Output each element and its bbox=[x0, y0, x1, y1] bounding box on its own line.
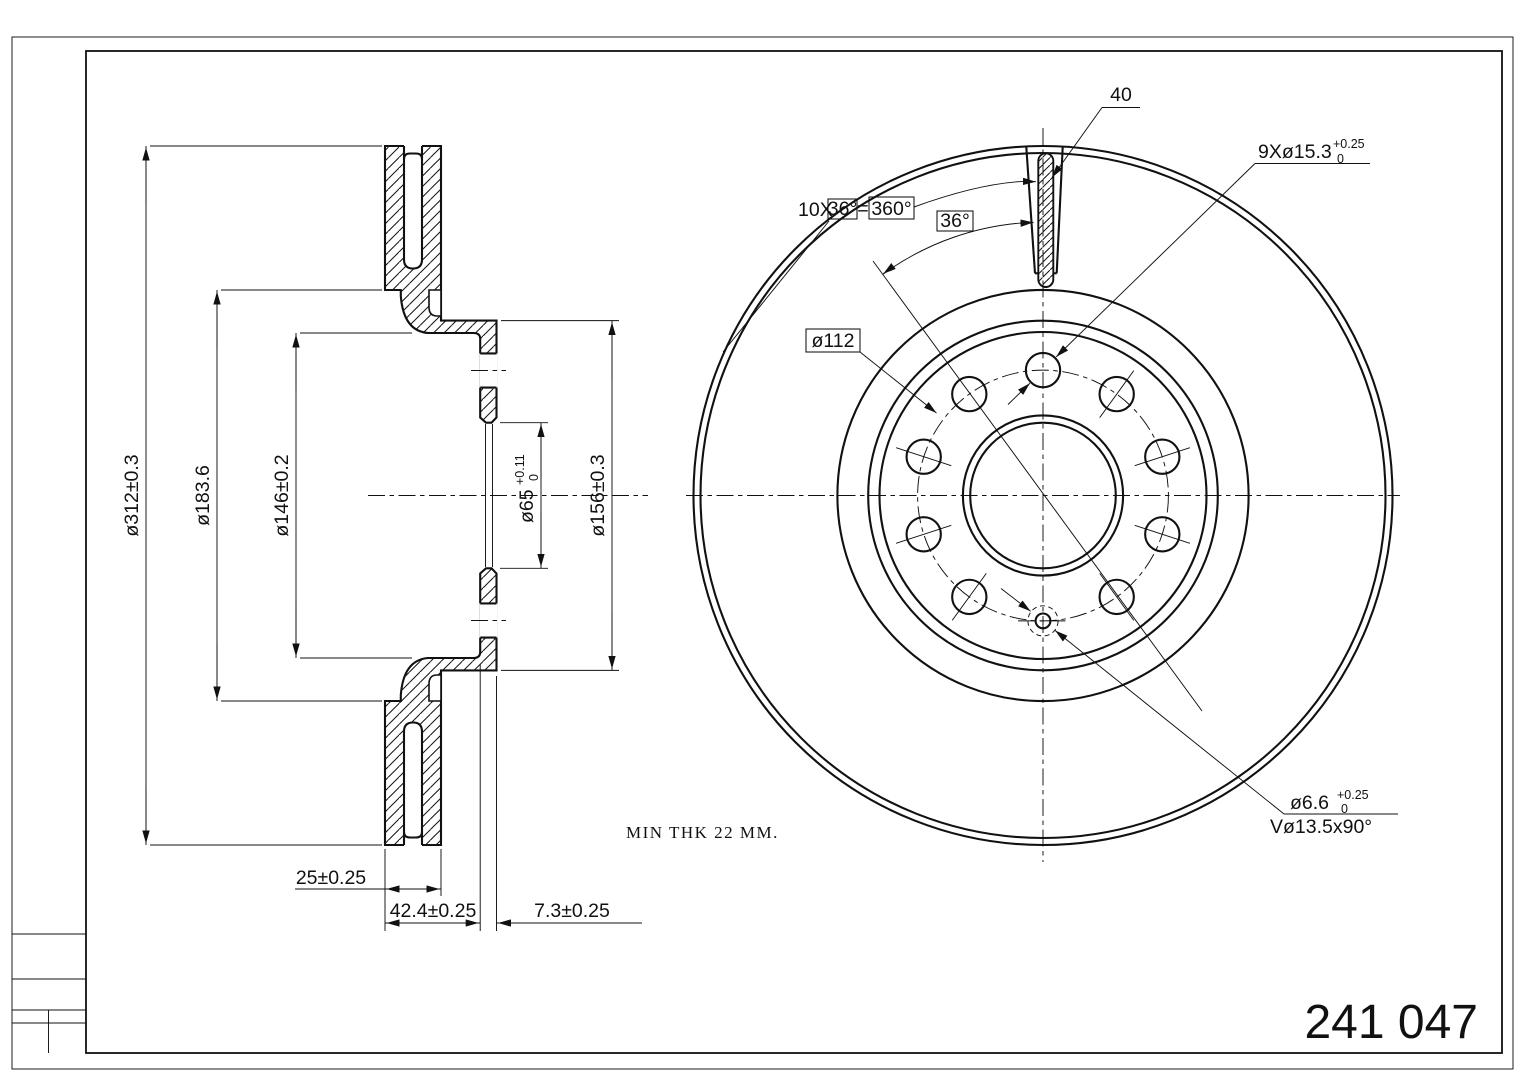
spacing-total-text: 360° bbox=[871, 198, 911, 220]
radial-line-36deg bbox=[873, 261, 1202, 711]
pin-hole-text: ø6.6 bbox=[1290, 792, 1329, 814]
label-bolt-circle: ø112 bbox=[806, 329, 937, 413]
vent-slot-section bbox=[1026, 147, 1062, 287]
bolt-holes-text: 9Xø15.3 bbox=[1258, 141, 1332, 163]
dim-outer-diameter: ø312±0.3 bbox=[121, 146, 382, 845]
section-view: ø312±0.3 ø183.6 ø146±0.2 ø65 + bbox=[121, 145, 779, 932]
dim-bore-diameter: ø65 +0.11 0 bbox=[500, 423, 548, 569]
dim-bore-tol-lower: 0 bbox=[527, 474, 541, 481]
front-view: 40 10X 36° = 360° 36° ø112 bbox=[686, 84, 1400, 862]
drawing-sheet: 241 047 bbox=[0, 0, 1527, 1080]
bolt-holes-tol-upper: +0.25 bbox=[1333, 137, 1365, 151]
dim-flange-thickness: 7.3±0.25 bbox=[497, 676, 643, 931]
part-number: 241 047 bbox=[1304, 996, 1478, 1049]
dim-bore-tol-upper: +0.11 bbox=[513, 454, 527, 485]
bolt-circle-text: ø112 bbox=[812, 330, 855, 352]
min-thickness-note: MIN THK 22 MM. bbox=[626, 823, 779, 842]
vent-channel-top bbox=[404, 145, 422, 269]
dim-ring-id-label: ø183.6 bbox=[192, 465, 214, 526]
slot-label-text: 40 bbox=[1110, 84, 1132, 106]
spacing-angle-text: 36° bbox=[828, 198, 858, 220]
label-hole-spacing: 10X 36° = 360° bbox=[723, 181, 1036, 352]
dim-flange-label: 7.3±0.25 bbox=[534, 900, 610, 922]
dim-hat-id-label: ø146±0.2 bbox=[271, 454, 293, 536]
technical-drawing: 241 047 bbox=[0, 0, 1527, 1080]
spacing-equals-text: = bbox=[857, 198, 868, 220]
vent-channel-bottom bbox=[404, 723, 422, 847]
dim-thickness-label: 25±0.25 bbox=[296, 867, 366, 889]
dim-hat-od-label: ø156±0.3 bbox=[587, 454, 609, 536]
dim-bore-label: ø65 bbox=[516, 489, 538, 523]
angle-label-text: 36° bbox=[940, 210, 970, 232]
countersink-text: Vø13.5x90° bbox=[1270, 816, 1372, 838]
sheet-frame: 241 047 bbox=[12, 37, 1513, 1069]
dim-height-label: 42.4±0.25 bbox=[390, 900, 477, 922]
title-block-grid bbox=[12, 934, 86, 1053]
pin-hole-tol-upper: +0.25 bbox=[1337, 788, 1369, 802]
dim-od-label: ø312±0.3 bbox=[121, 454, 143, 536]
